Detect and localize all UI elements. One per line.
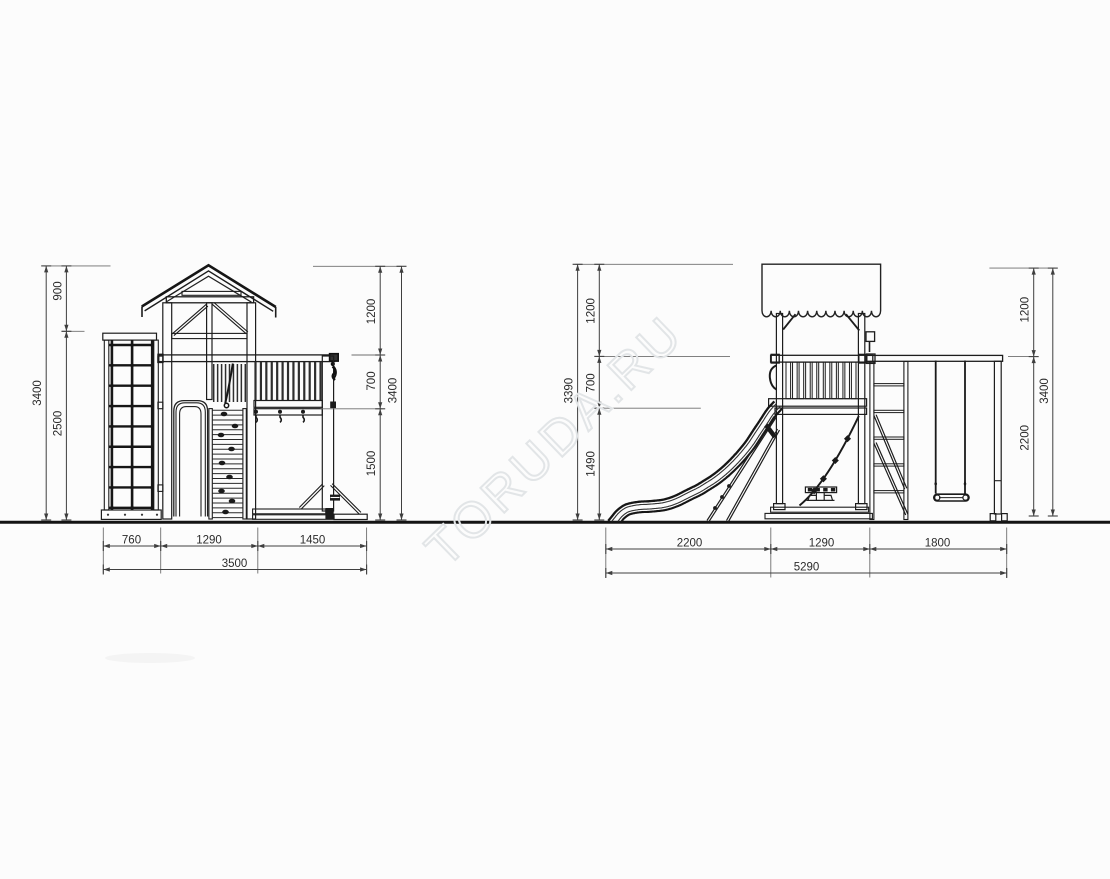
svg-text:1200: 1200	[366, 299, 378, 325]
svg-text:2200: 2200	[1020, 425, 1032, 451]
svg-text:2200: 2200	[677, 538, 703, 550]
svg-text:1450: 1450	[300, 535, 326, 547]
svg-text:3500: 3500	[222, 558, 248, 570]
svg-text:1200: 1200	[1020, 297, 1032, 323]
svg-text:3400: 3400	[388, 378, 400, 404]
svg-text:1290: 1290	[809, 538, 835, 550]
svg-text:3400: 3400	[1039, 378, 1051, 404]
svg-text:3400: 3400	[32, 380, 44, 406]
svg-text:1800: 1800	[925, 538, 951, 550]
svg-text:700: 700	[366, 371, 378, 390]
svg-text:1200: 1200	[585, 298, 597, 324]
svg-text:1490: 1490	[585, 451, 597, 477]
svg-text:900: 900	[52, 281, 64, 300]
svg-text:1500: 1500	[366, 451, 378, 477]
svg-text:2500: 2500	[52, 411, 64, 437]
svg-text:5290: 5290	[794, 562, 820, 574]
svg-text:760: 760	[122, 535, 141, 547]
svg-text:1290: 1290	[196, 535, 222, 547]
